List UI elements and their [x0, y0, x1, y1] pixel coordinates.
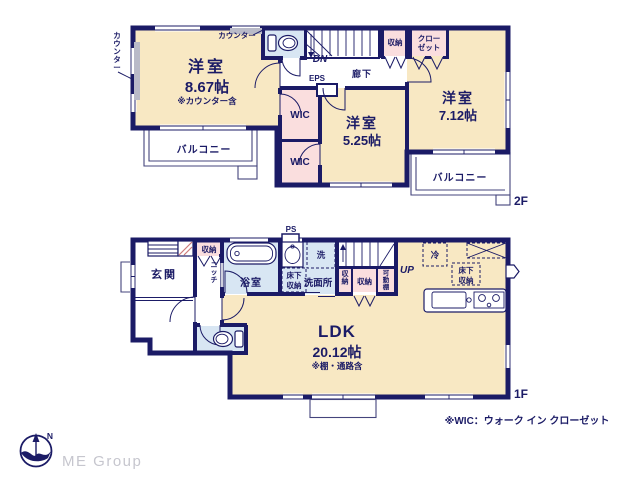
storage-2f-label: 収納: [388, 37, 403, 47]
storage-wide-label: 収納: [357, 276, 372, 286]
washbasin-icon: [282, 242, 303, 267]
entrance-storage-label: 収納: [202, 244, 217, 254]
wic-upper-label: WIC: [290, 110, 309, 121]
room-712-size: 7.12帖: [439, 108, 477, 123]
floor2-label: 2F: [514, 194, 528, 208]
eps-label: EPS: [309, 74, 326, 83]
entrance-label: 玄関: [151, 267, 177, 281]
bathtub-icon: [227, 243, 276, 264]
ldk-note: ※棚・通路含: [312, 361, 363, 371]
ps-label: PS: [286, 225, 297, 234]
room-867-size: 8.67帖: [185, 78, 229, 96]
niche-recess: [221, 263, 224, 287]
shoe-cabinet-icon: [148, 241, 193, 256]
bathroom-label: 浴室: [240, 276, 262, 289]
closet-label-line1: クロー: [418, 33, 441, 43]
floorplan-svg: 洋室 8.67帖 ※カウンター含 カウンター カウンター バルコニー バルコニー…: [0, 0, 640, 480]
room-867-label: 洋室: [188, 57, 226, 76]
underfloor-storage-kitchen-line1: 床下: [459, 265, 474, 275]
fridge-label: 冷: [431, 250, 440, 260]
underfloor-storage-wash-line2: 収納: [287, 280, 302, 290]
kitchen-counter: [424, 289, 506, 312]
floor1-room-fills: [133, 240, 508, 397]
storage-narrow-label: 収納: [342, 269, 350, 286]
floor2-plan: 洋室 8.67帖 ※カウンター含 カウンター カウンター バルコニー バルコニー…: [113, 25, 528, 209]
kitchen-door-arrow: [506, 265, 519, 278]
room-712-label: 洋室: [442, 90, 474, 106]
balcony-left-label: バルコニー: [177, 144, 232, 156]
wic-footnote: ※WIC：ウォーク イン クローゼット: [445, 414, 610, 427]
niche-label: ニッチ: [211, 262, 218, 284]
room-525-size: 5.25帖: [343, 133, 381, 148]
room-867-note: ※カウンター含: [177, 96, 237, 106]
movable-shelf-label: 可動棚: [383, 269, 390, 291]
balcony-right-label: バルコニー: [433, 172, 488, 184]
floor1-plan: 玄関 収納 ニッチ 浴室 PS 洗 洗面所 床下 収納 収納 収納 可動棚 UP…: [121, 225, 528, 418]
counter-strip-left: [118, 42, 140, 100]
underfloor-storage-wash-line1: 床下: [287, 270, 302, 280]
footer: ※WIC：ウォーク イン クローゼット N ME Group: [21, 414, 610, 470]
floorplan-page: 洋室 8.67帖 ※カウンター含 カウンター カウンター バルコニー バルコニー…: [0, 0, 640, 480]
logo-text: ME Group: [62, 453, 142, 470]
wic-lower-label: WIC: [290, 157, 309, 168]
room-525-label: 洋室: [346, 115, 378, 131]
toilet-icon-2f: [268, 35, 298, 51]
counter-left-label: カウンター: [113, 31, 121, 72]
underfloor-storage-kitchen-line2: 収納: [459, 275, 474, 285]
compass-north-label: N: [47, 431, 53, 441]
stairs-up-label: UP: [400, 265, 414, 276]
corridor-label: 廊下: [352, 68, 372, 79]
washer-label: 洗: [317, 250, 326, 260]
toilet-icon-1f: [214, 331, 244, 347]
ldk-size: 20.12帖: [312, 344, 361, 360]
counter-top-label: カウンター: [218, 30, 256, 40]
closet-label-line2: ゼット: [418, 42, 441, 52]
ldk-label: LDK: [318, 322, 356, 341]
washroom-label: 洗面所: [304, 277, 333, 289]
floor1-label: 1F: [514, 387, 528, 401]
eps-shaft: [317, 84, 337, 96]
stairs-down-label: DN: [313, 54, 328, 65]
terrace-step: [310, 400, 376, 418]
entrance-porch: [121, 262, 130, 292]
compass-icon: N: [21, 431, 54, 467]
